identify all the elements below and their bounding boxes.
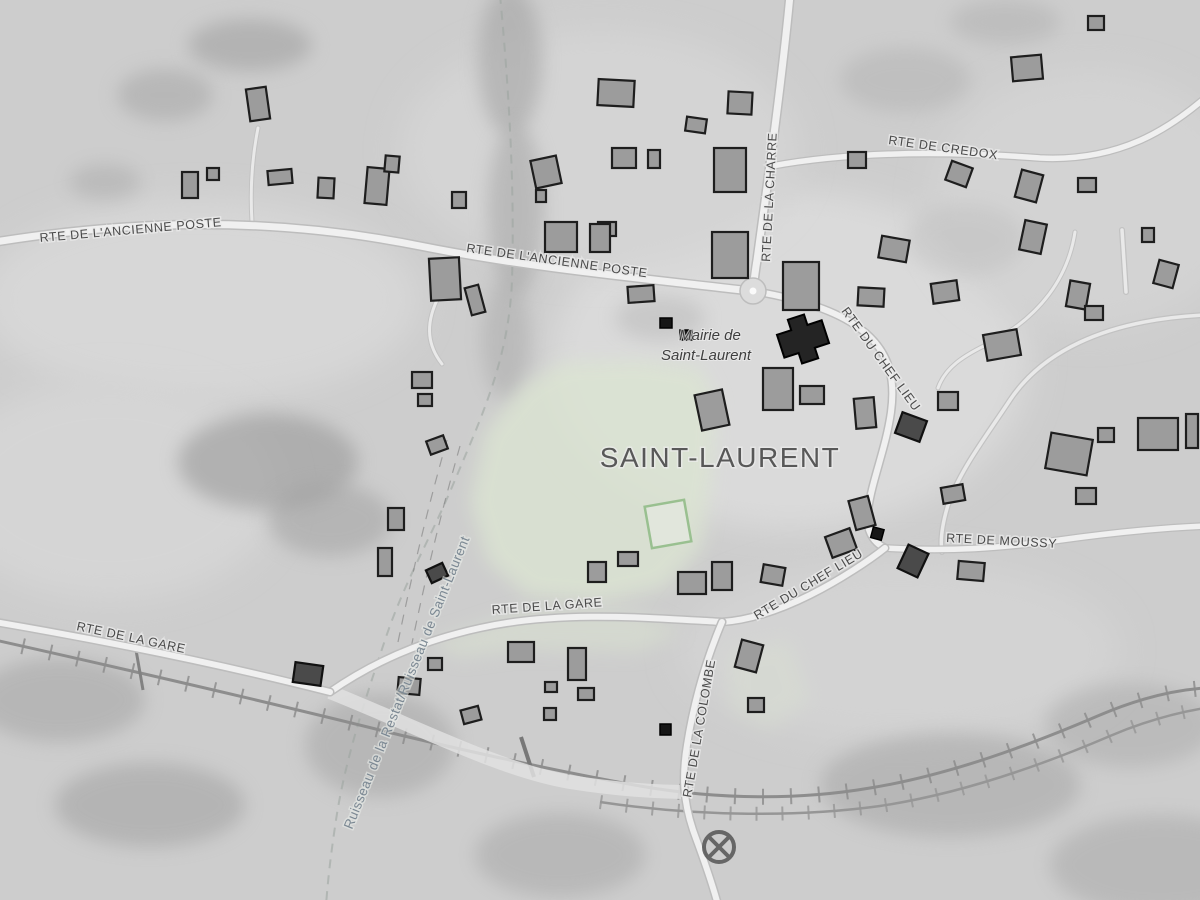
map-canvas[interactable]: RTE DE L'ANCIENNE POSTE RTE DE L'ANCIENN… (0, 0, 1200, 900)
poi-label-mairie-line2: Saint-Laurent (661, 347, 752, 364)
roundabout (740, 278, 766, 304)
sports-pitch (645, 500, 692, 548)
place-label-saint-laurent: SAINT-LAURENT (600, 442, 840, 473)
poi-label-mairie-line1: Mairie de (679, 327, 741, 344)
crossed-circle-icon (704, 832, 734, 862)
